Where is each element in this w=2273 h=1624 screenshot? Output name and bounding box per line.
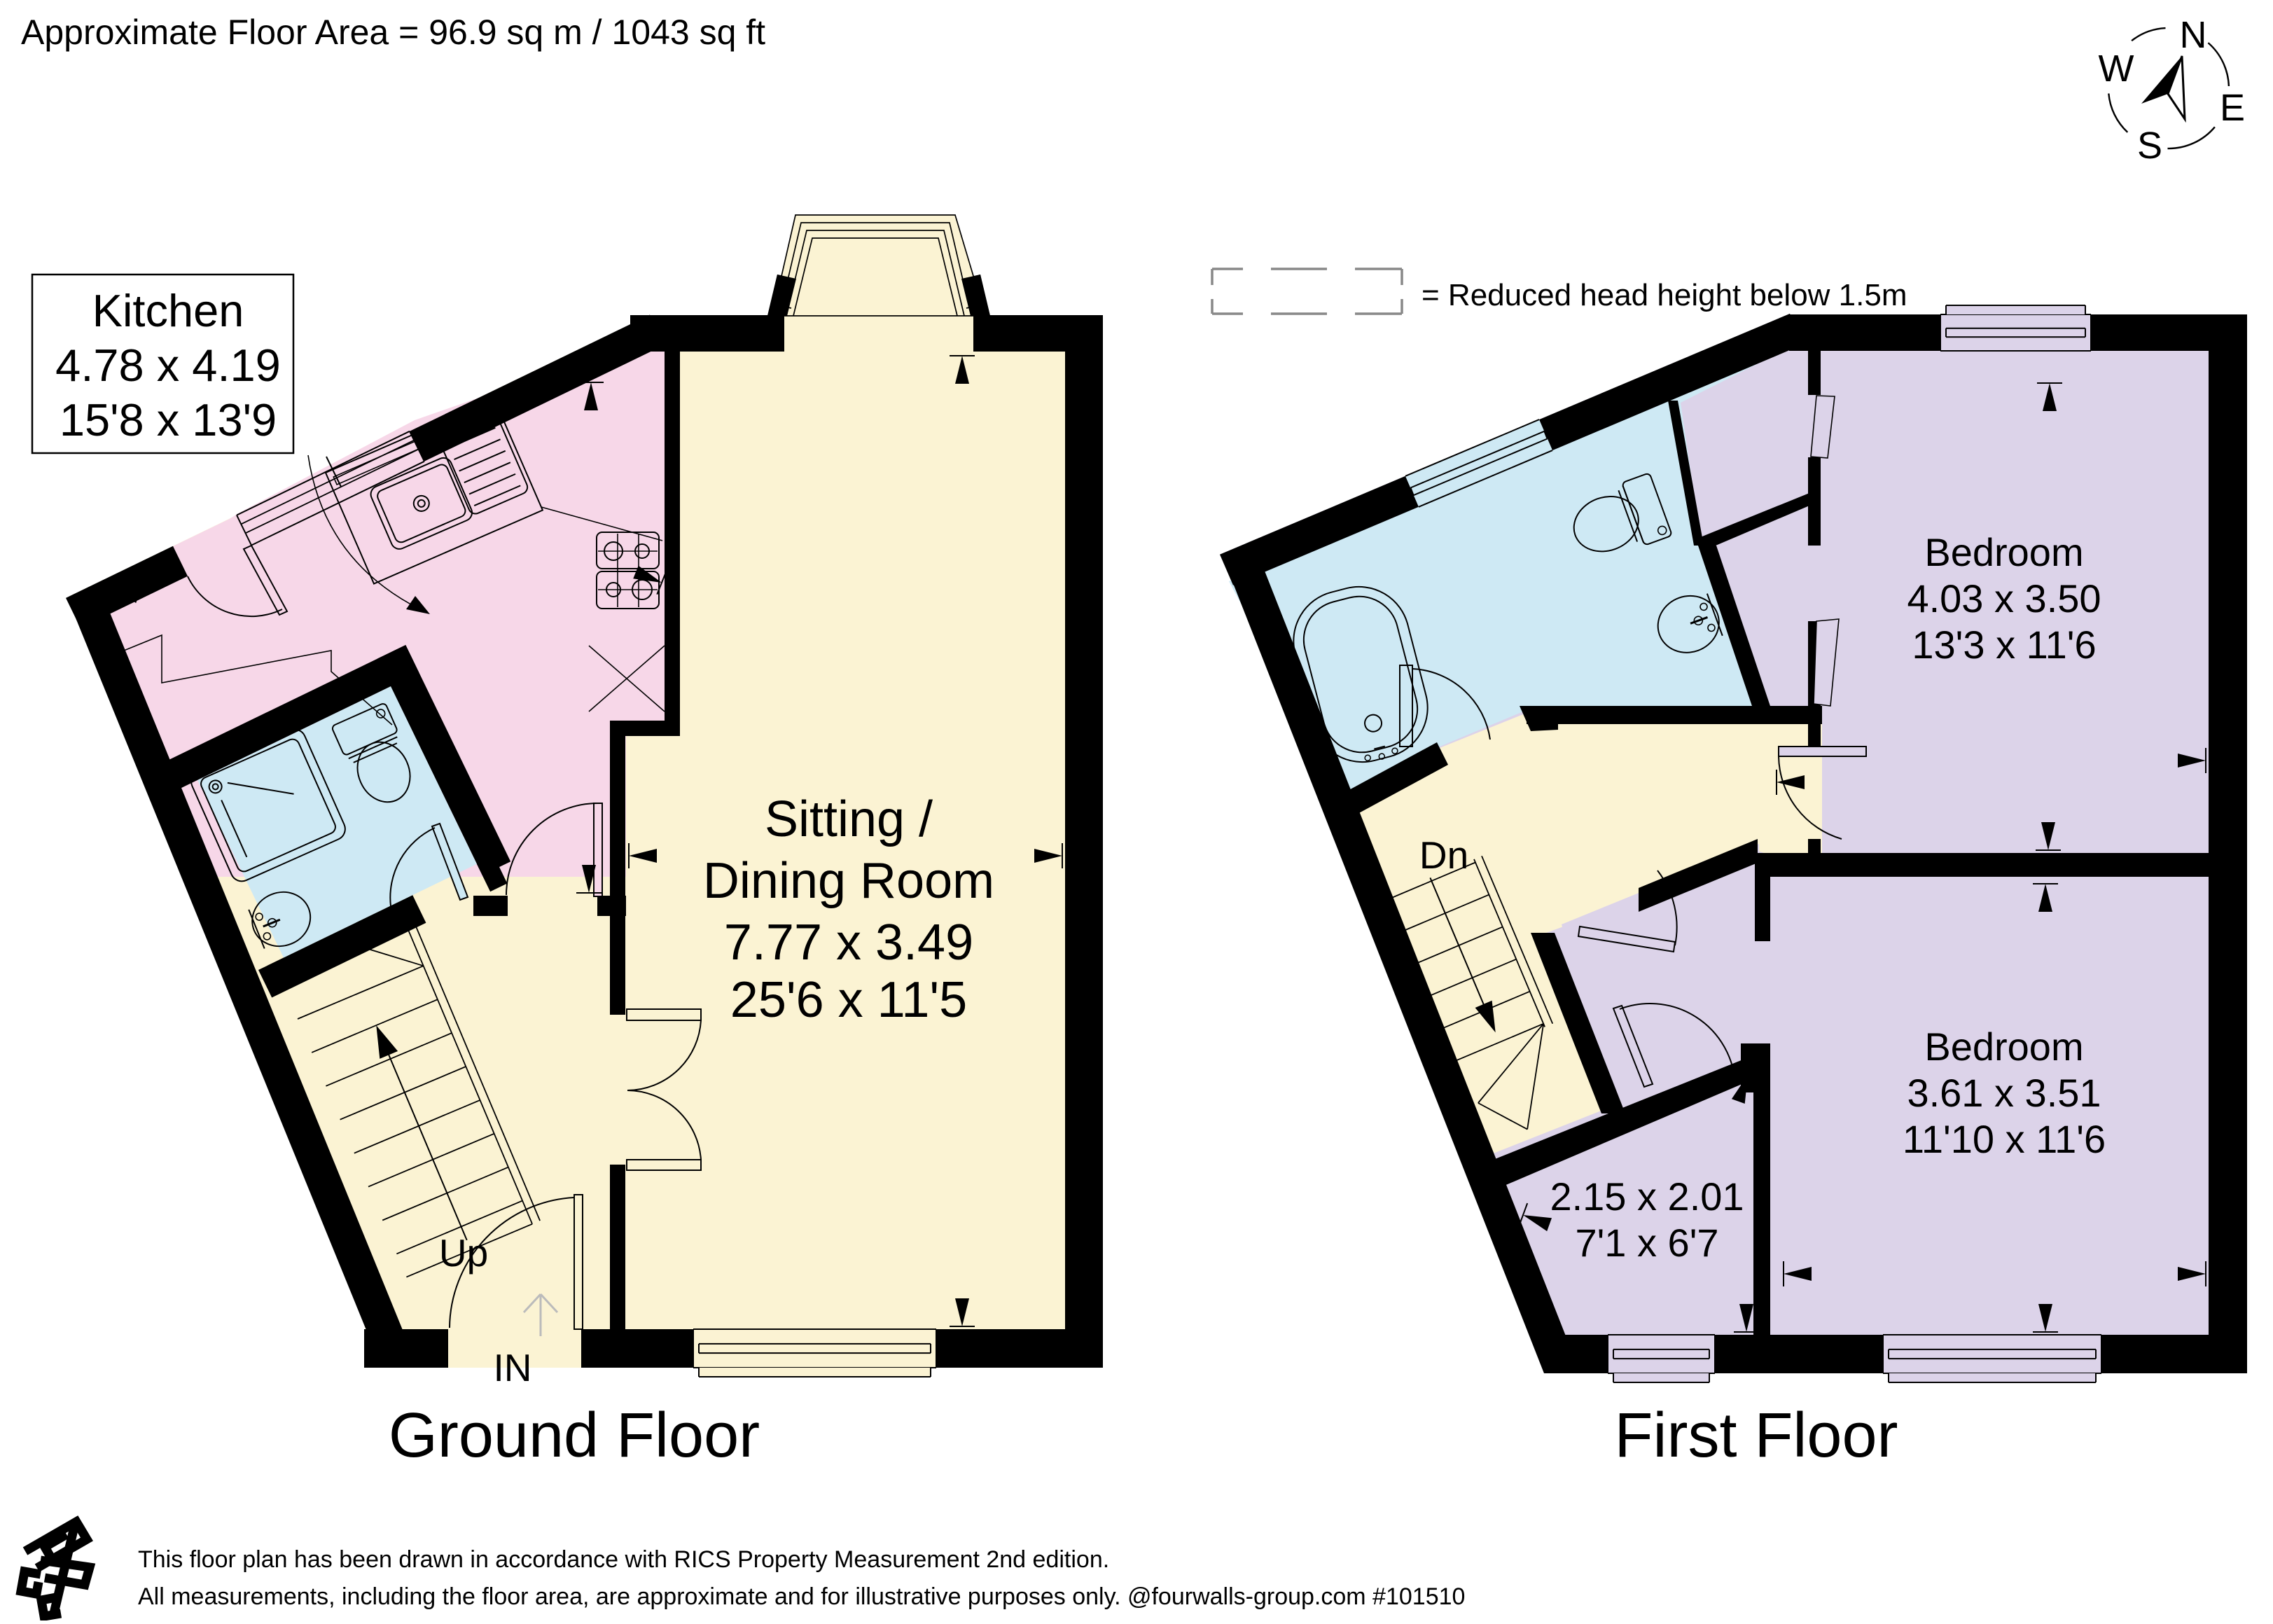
svg-text:E: E <box>2220 87 2245 129</box>
svg-text:First Floor: First Floor <box>1615 1401 1898 1471</box>
svg-text:All measurements, including th: All measurements, including the floor ar… <box>138 1583 1465 1610</box>
svg-text:4.78 x 4.19: 4.78 x 4.19 <box>55 340 281 391</box>
svg-text:7.77 x 3.49: 7.77 x 3.49 <box>724 915 973 971</box>
svg-text:S: S <box>2137 125 2162 167</box>
svg-text:Dn: Dn <box>1419 833 1468 877</box>
svg-text:Dining Room: Dining Room <box>703 853 994 909</box>
svg-text:25'6 x 11'5: 25'6 x 11'5 <box>730 972 967 1028</box>
svg-text:Bedroom: Bedroom <box>1924 530 2083 574</box>
svg-text:15'8 x 13'9: 15'8 x 13'9 <box>60 394 277 445</box>
svg-text:2.15 x 2.01: 2.15 x 2.01 <box>1550 1174 1744 1219</box>
svg-text:Sitting /: Sitting / <box>765 791 933 847</box>
svg-text:IN: IN <box>494 1346 532 1389</box>
svg-text:7'1 x 6'7: 7'1 x 6'7 <box>1575 1221 1718 1265</box>
svg-text:3.61 x 3.51: 3.61 x 3.51 <box>1907 1071 2101 1115</box>
svg-text:Up: Up <box>439 1231 488 1275</box>
svg-text:This floor plan has been drawn: This floor plan has been drawn in accord… <box>138 1546 1109 1573</box>
svg-text:Bedroom: Bedroom <box>1924 1025 2083 1069</box>
svg-text:11'10 x 11'6: 11'10 x 11'6 <box>1903 1117 2106 1161</box>
svg-text:W: W <box>2099 48 2134 90</box>
svg-text:13'3 x 11'6: 13'3 x 11'6 <box>1912 623 2096 667</box>
svg-text:= Reduced head height below 1.: = Reduced head height below 1.5m <box>1422 278 1907 312</box>
svg-text:4.03 x 3.50: 4.03 x 3.50 <box>1907 576 2101 620</box>
svg-text:Ground Floor: Ground Floor <box>389 1401 760 1471</box>
svg-text:Approximate Floor Area = 96.9: Approximate Floor Area = 96.9 sq m / 104… <box>21 13 765 52</box>
svg-text:Kitchen: Kitchen <box>92 285 244 336</box>
svg-text:N: N <box>2180 14 2207 56</box>
